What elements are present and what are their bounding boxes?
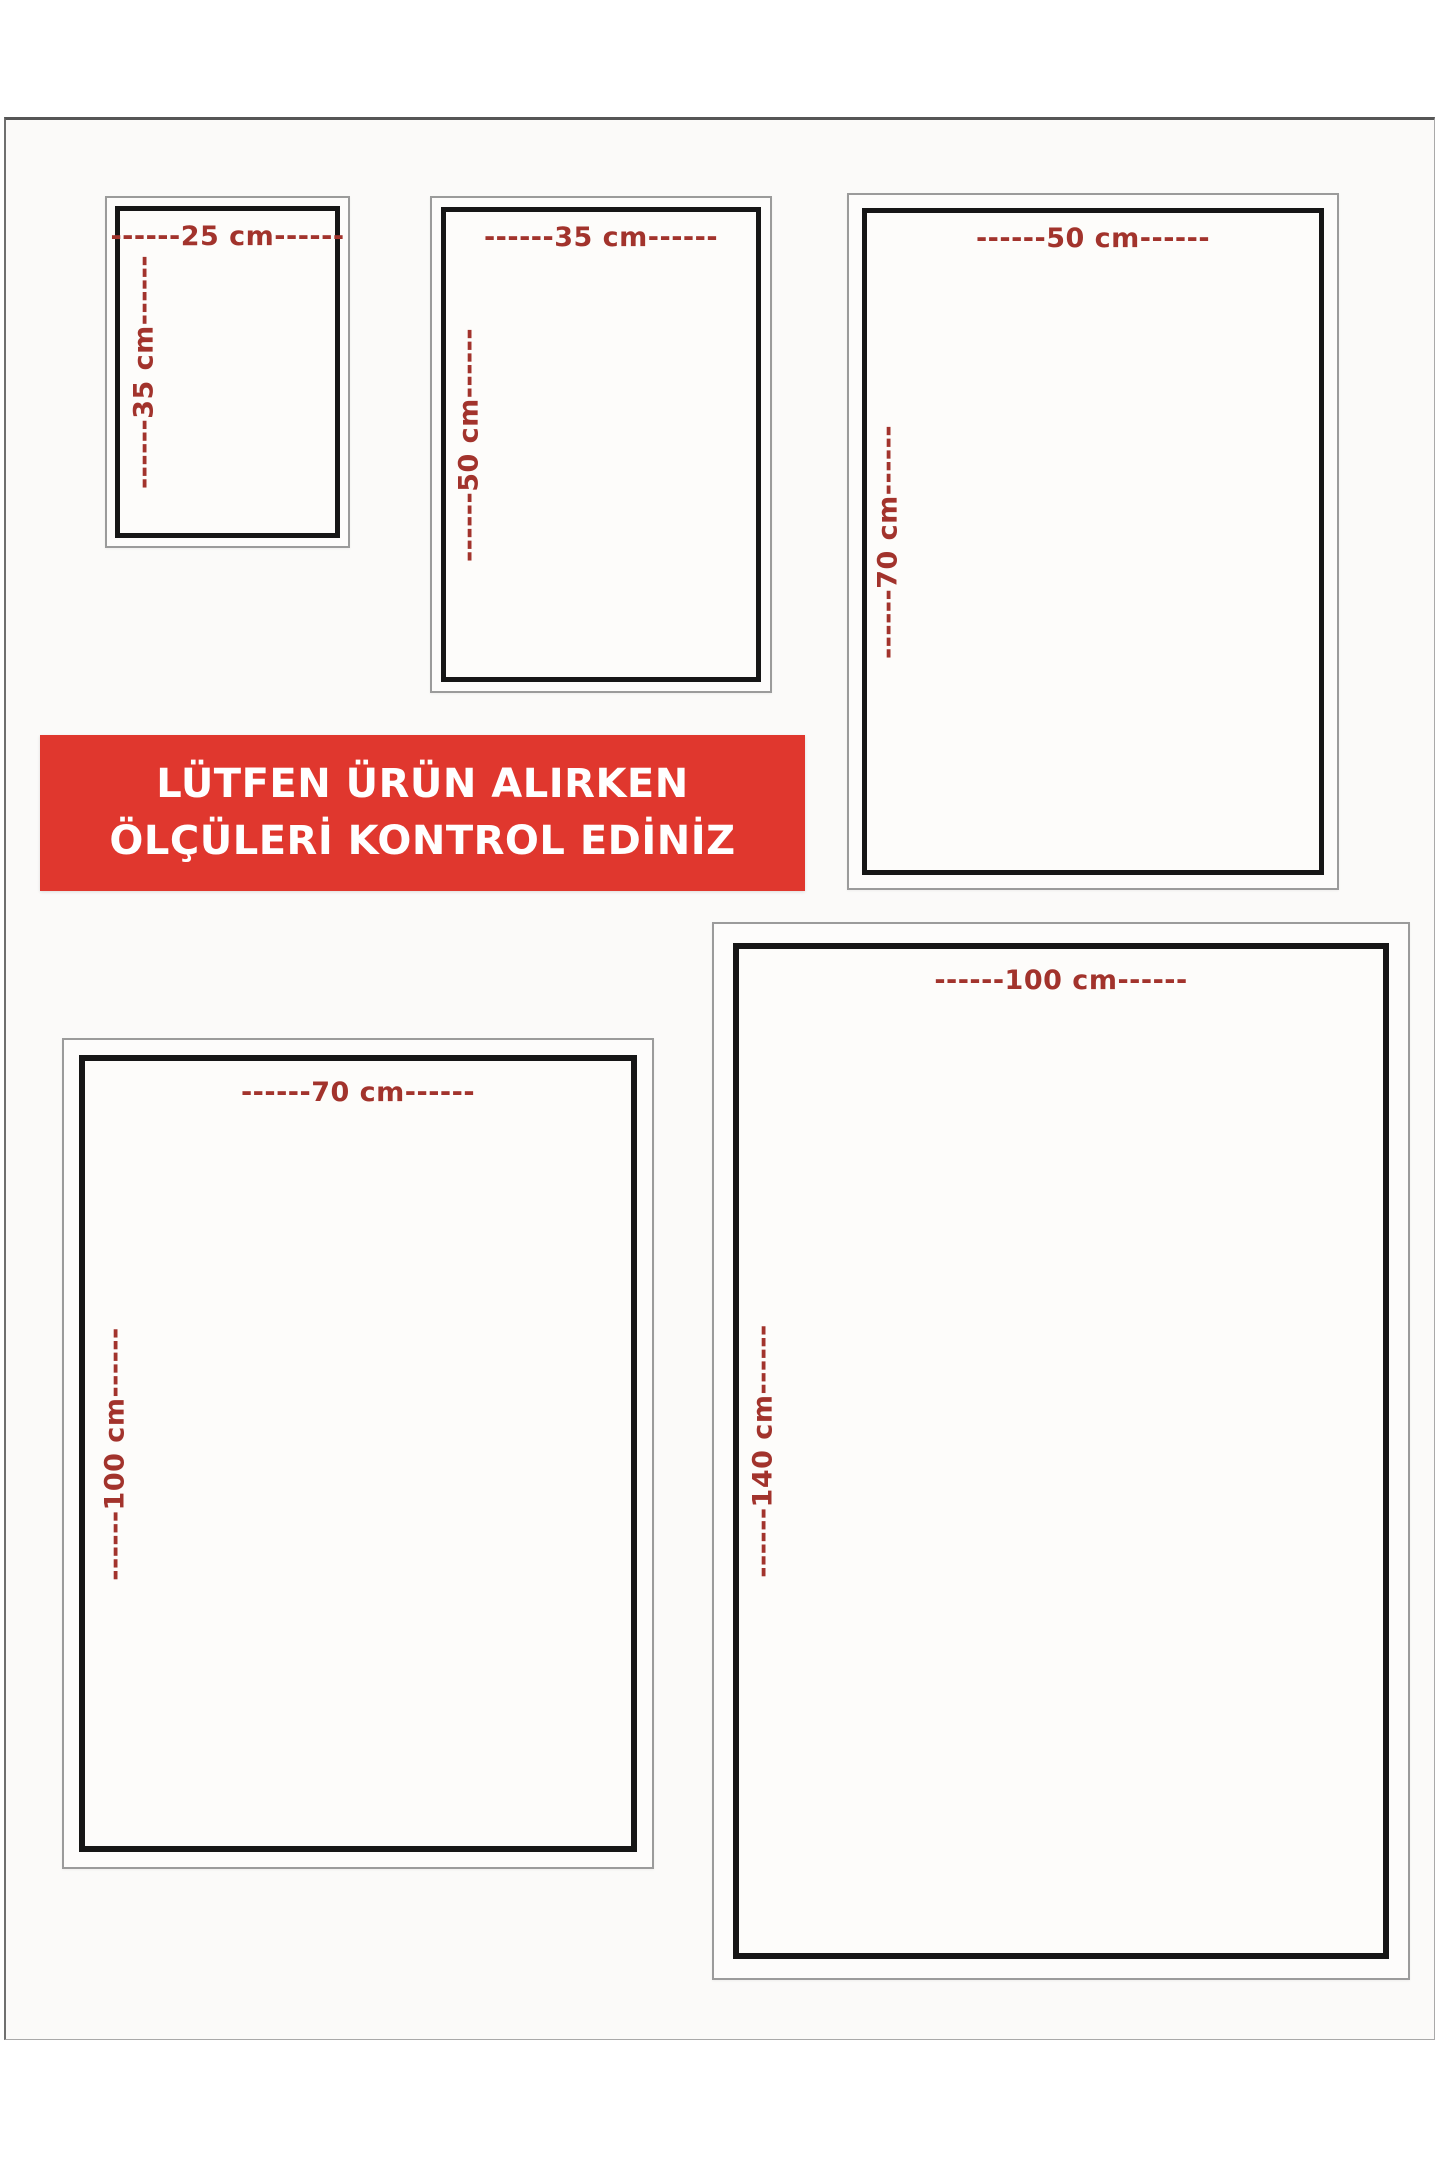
- size-box-35x50-frame: ------35 cm------ ------50 cm------: [441, 207, 761, 682]
- size-box-50x70-frame: ------50 cm------ ------70 cm------: [862, 208, 1324, 875]
- size-box-25x35-frame: ------25 cm------ ------35 cm------: [115, 206, 340, 538]
- height-dimension-label-35cm: ------35 cm------: [129, 255, 160, 489]
- height-dimension-label-70cm: ------70 cm------: [873, 424, 904, 658]
- size-box-100x140-frame: ------100 cm------ ------140 cm------: [733, 943, 1389, 1959]
- width-dimension-label-35cm: ------35 cm------: [484, 222, 718, 253]
- warning-banner-line1: LÜTFEN ÜRÜN ALIRKEN: [156, 756, 688, 813]
- page-background: ------25 cm------ ------35 cm------ ----…: [4, 117, 1435, 2040]
- width-dimension-label-100cm: ------100 cm------: [934, 965, 1187, 996]
- size-box-100x140: ------100 cm------ ------140 cm------: [712, 922, 1410, 1980]
- width-dimension-label-50cm: ------50 cm------: [976, 223, 1210, 254]
- size-box-25x35: ------25 cm------ ------35 cm------: [105, 196, 350, 548]
- size-box-70x100: ------70 cm------ ------100 cm------: [62, 1038, 654, 1869]
- width-dimension-label-25cm: ------25 cm------: [110, 221, 344, 252]
- size-box-70x100-frame: ------70 cm------ ------100 cm------: [79, 1055, 637, 1852]
- size-box-50x70: ------50 cm------ ------70 cm------: [847, 193, 1339, 890]
- size-box-35x50: ------35 cm------ ------50 cm------: [430, 196, 772, 693]
- warning-banner-line2: ÖLÇÜLERİ KONTROL EDİNİZ: [109, 813, 735, 870]
- height-dimension-label-50cm: ------50 cm------: [454, 327, 485, 561]
- warning-banner: LÜTFEN ÜRÜN ALIRKEN ÖLÇÜLERİ KONTROL EDİ…: [40, 735, 805, 891]
- height-dimension-label-100cm: ------100 cm------: [100, 1327, 131, 1580]
- size-guide-canvas: ------25 cm------ ------35 cm------ ----…: [0, 0, 1440, 2160]
- height-dimension-label-140cm: ------140 cm------: [748, 1324, 779, 1577]
- width-dimension-label-70cm: ------70 cm------: [241, 1077, 475, 1108]
